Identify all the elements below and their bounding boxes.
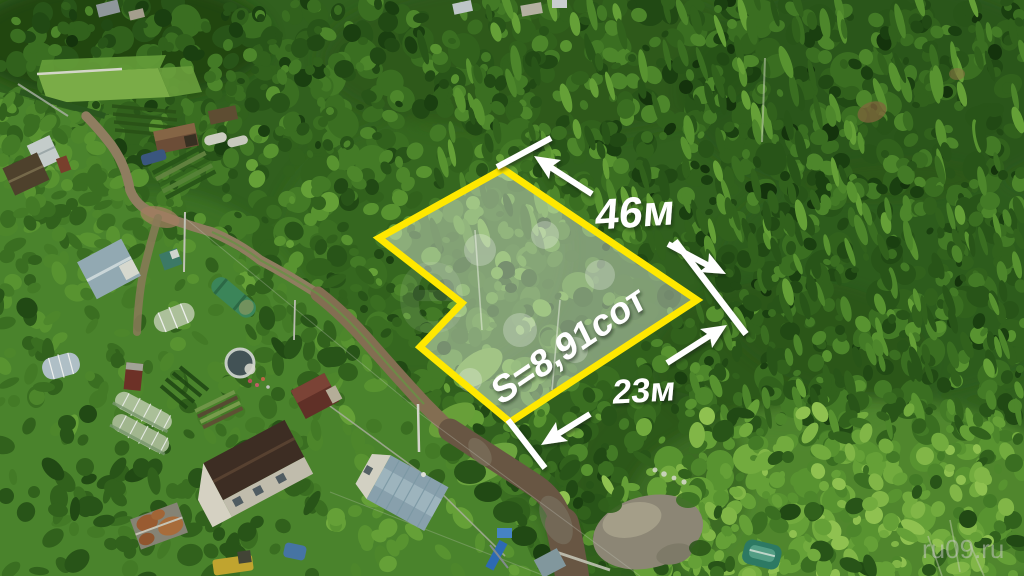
svg-text:ru09.ru: ru09.ru <box>922 534 1004 564</box>
svg-text:23м: 23м <box>611 370 677 411</box>
svg-text:46м: 46м <box>594 186 677 240</box>
